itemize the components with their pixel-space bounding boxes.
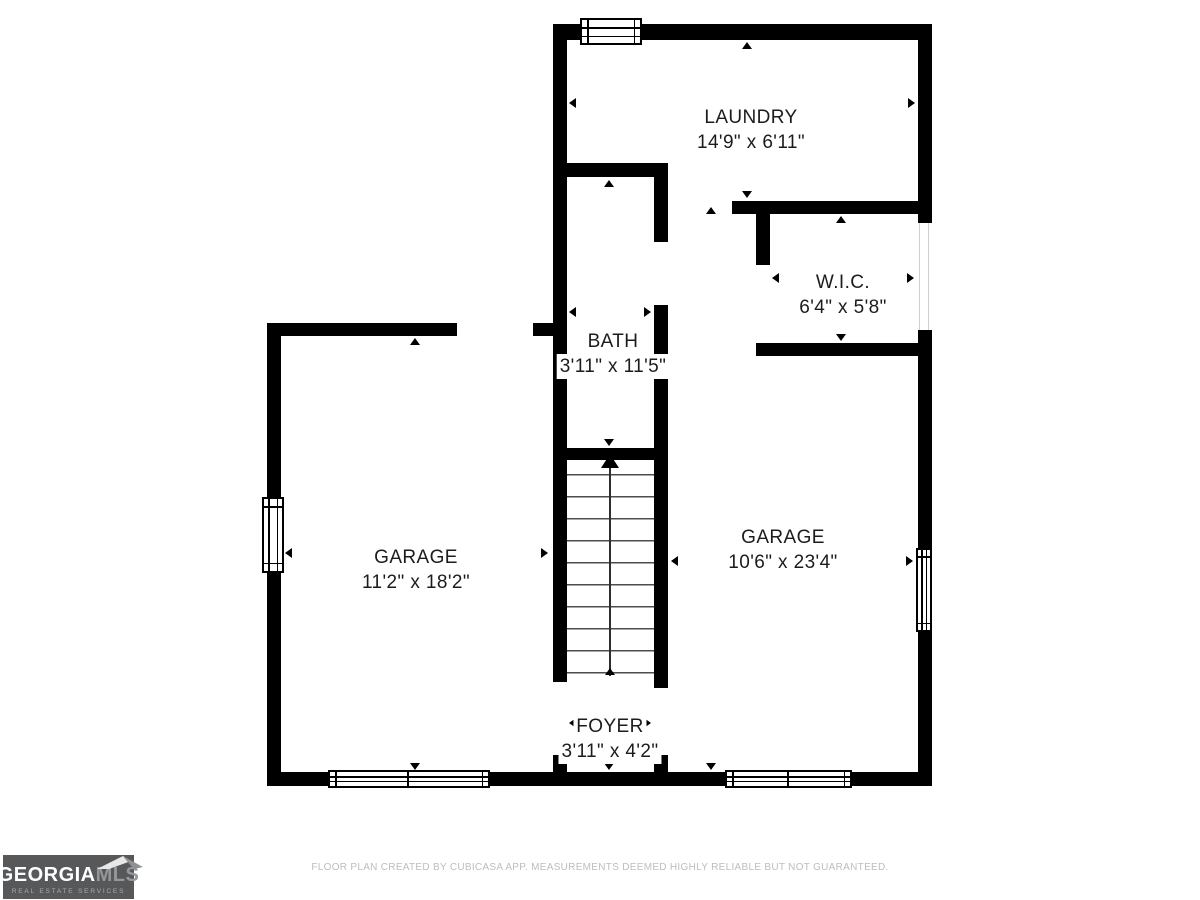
stair-start-arrow-icon <box>605 668 615 675</box>
window-mullion <box>482 772 484 786</box>
window-mullion <box>918 556 930 558</box>
extent-arrow-icon-bath-left <box>569 307 576 317</box>
window-mullion <box>264 563 282 565</box>
extent-arrow-icon-foyer-bottom <box>604 763 614 770</box>
window-mullion <box>582 27 640 29</box>
room-name: BATH <box>585 329 642 354</box>
room-dims: 3'11" x 4'2" <box>558 739 661 764</box>
room-label-garage-right: GARAGE 10'6" x 23'4" <box>725 525 840 575</box>
room-label-garage-left: GARAGE 11'2" x 18'2" <box>359 545 473 595</box>
window-mullion <box>268 499 270 571</box>
extent-arrow-icon-garage-left-top <box>410 338 420 345</box>
window-bottom-right-b <box>787 770 852 788</box>
window-laundry-top <box>580 18 642 45</box>
footer-disclaimer: FLOOR PLAN CREATED BY CUBICASA APP. MEAS… <box>0 862 1200 873</box>
window-mullion <box>732 772 734 786</box>
window-bottom-left-b <box>407 770 490 788</box>
room-dims: 10'6" x 23'4" <box>725 550 840 575</box>
extent-arrow-icon-wic-bottom <box>836 334 846 341</box>
room-dims: 14'9" x 6'11" <box>694 130 808 155</box>
room-label-laundry: LAUNDRY 14'9" x 6'11" <box>694 105 808 155</box>
extent-arrow-icon-wic-top <box>836 216 846 223</box>
room-label-bath: BATH 3'11" x 11'5" <box>557 329 670 379</box>
window-mullion <box>264 506 282 508</box>
wall-wic-top <box>732 201 932 214</box>
wall-wic-left-stub <box>756 214 770 265</box>
wall-bath-top <box>553 163 668 177</box>
wall-garage-left-top-a <box>267 323 457 336</box>
window-mullion <box>330 781 407 783</box>
extent-arrow-icon-laundry-right <box>908 98 915 108</box>
extent-arrow-icon-laundry-left <box>569 98 576 108</box>
wall-bath-right-a <box>654 163 668 242</box>
window-mullion <box>844 772 846 786</box>
window-mullion <box>918 623 930 625</box>
window-mullion <box>587 20 589 43</box>
extent-arrow-icon-wic-left <box>772 273 779 283</box>
window-mullion <box>335 772 337 786</box>
window-mullion <box>634 20 636 43</box>
window-mullion <box>582 36 640 38</box>
logo-tagline: REAL ESTATE SERVICES <box>12 888 125 895</box>
floor-plan-canvas: LAUNDRY 14'9" x 6'11" W.I.C. 6'4" x 5'8"… <box>0 0 1200 900</box>
extent-arrow-icon-garage-right-bottom <box>706 763 716 770</box>
extent-arrow-icon-laundry-top <box>742 42 752 49</box>
wall-right-exterior-c <box>918 632 932 786</box>
window-mullion <box>926 550 928 630</box>
extent-arrow-icon-bath-bottom <box>604 439 614 446</box>
stair-direction-line <box>609 468 611 676</box>
window-mullion <box>409 776 488 778</box>
window-mullion <box>789 781 850 783</box>
room-name: GARAGE <box>371 545 461 570</box>
room-name: LAUNDRY <box>701 105 800 130</box>
window-mullion <box>409 781 488 783</box>
window-mullion <box>921 550 923 630</box>
window-mullion <box>789 776 850 778</box>
wall-wic-bottom <box>756 343 932 356</box>
logo-brand-primary: GEORGIA <box>0 864 96 886</box>
window-mullion <box>330 776 407 778</box>
room-name: GARAGE <box>738 525 828 550</box>
roof-icon <box>97 856 143 869</box>
extent-arrow-icon-garage-right-right <box>906 556 913 566</box>
window-mullion <box>727 781 787 783</box>
wall-right-exterior-a <box>918 24 932 223</box>
stair-direction-arrow-icon <box>601 454 619 468</box>
room-label-foyer: FOYER 3'11" x 4'2" <box>558 714 661 764</box>
extent-arrow-icon-garage-right-top <box>706 207 716 214</box>
wall-right-exterior-b <box>918 330 932 548</box>
extent-arrow-icon-garage-right-left <box>671 556 678 566</box>
georgia-mls-logo: GEORGIAMLS REAL ESTATE SERVICES <box>3 855 134 899</box>
window-mullion <box>727 776 787 778</box>
extent-arrow-icon-wic-right <box>907 273 914 283</box>
extent-arrow-icon-laundry-bottom <box>742 191 752 198</box>
extent-arrow-icon-garage-left-bottom <box>410 763 420 770</box>
extent-arrow-icon-garage-left-left <box>285 548 292 558</box>
window-bottom-right-a <box>725 770 789 788</box>
room-label-wic: W.I.C. 6'4" x 5'8" <box>796 270 889 320</box>
room-dims: 6'4" x 5'8" <box>796 295 889 320</box>
window-bottom-left-a <box>328 770 409 788</box>
room-dims: 11'2" x 18'2" <box>359 570 473 595</box>
extent-arrow-icon-bath-right <box>644 307 651 317</box>
room-name: FOYER <box>573 714 646 739</box>
logo-brand-row: GEORGIAMLS <box>0 865 139 887</box>
opening-wic-right <box>919 223 929 330</box>
room-dims: 3'11" x 11'5" <box>557 354 670 379</box>
window-mullion <box>277 499 279 571</box>
window-garage-right-wall <box>916 548 932 632</box>
extent-arrow-icon-garage-left-right <box>541 548 548 558</box>
room-name: W.I.C. <box>813 270 873 295</box>
window-garage-left-wall <box>262 497 284 573</box>
extent-arrow-icon-bath-top <box>604 180 614 187</box>
